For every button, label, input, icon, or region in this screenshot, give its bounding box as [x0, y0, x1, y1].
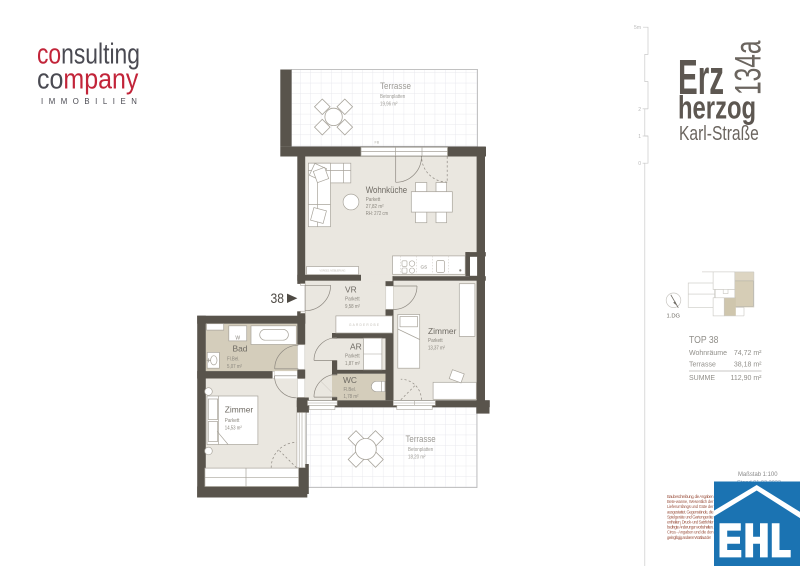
svg-text:Terrasse: Terrasse [689, 362, 716, 369]
svg-text:SUMME: SUMME [689, 375, 715, 382]
svg-text:Parkett: Parkett [345, 354, 360, 360]
svg-text:Wohnküche: Wohnküche [366, 185, 408, 195]
svg-text:FB: FB [375, 141, 380, 145]
svg-text:5,07 m²: 5,07 m² [227, 364, 242, 370]
svg-text:Zimmer: Zimmer [428, 326, 457, 336]
svg-text:38,18 m²: 38,18 m² [734, 362, 762, 369]
svg-text:Fl.Bel.: Fl.Bel. [344, 387, 357, 393]
svg-text:Wohnräume: Wohnräume [689, 350, 727, 357]
svg-text:1,78 m²: 1,78 m² [344, 394, 359, 400]
svg-text:Fl.Bel.: Fl.Bel. [227, 357, 240, 363]
svg-text:Betonplatten: Betonplatten [408, 447, 433, 453]
svg-text:Parkett: Parkett [428, 338, 443, 344]
svg-text:VORGES. MÖBLIERUNG: VORGES. MÖBLIERUNG [320, 270, 346, 273]
svg-text:Parkett: Parkett [366, 197, 381, 203]
svg-text:Betonplatten: Betonplatten [380, 94, 405, 100]
svg-text:AR: AR [350, 342, 362, 352]
svg-text:Parkett: Parkett [345, 297, 360, 303]
svg-text:Terrasse: Terrasse [406, 434, 436, 445]
svg-text:2: 2 [638, 107, 641, 113]
svg-text:VR: VR [345, 285, 357, 295]
svg-text:geringfügig anderen Wortlaut d: geringfügig anderen Wortlaut der [667, 535, 712, 540]
svg-text:GS: GS [421, 264, 428, 269]
svg-text:112,90 m²: 112,90 m² [731, 375, 763, 382]
svg-text:1: 1 [638, 134, 641, 140]
svg-text:Bad: Bad [233, 344, 248, 354]
svg-text:14,53 m²: 14,53 m² [225, 426, 242, 432]
svg-text:1.DG: 1.DG [667, 314, 681, 320]
svg-text:5m: 5m [634, 25, 641, 31]
svg-text:134a: 134a [727, 40, 769, 95]
svg-text:company: company [37, 62, 138, 95]
svg-text:Maßstab 1:100: Maßstab 1:100 [738, 471, 778, 478]
svg-text:13,37 m²: 13,37 m² [428, 346, 445, 352]
svg-text:9,58 m²: 9,58 m² [345, 304, 360, 310]
svg-text:GARDEROBE: GARDEROBE [349, 323, 379, 327]
svg-text:1,87 m²: 1,87 m² [345, 361, 360, 367]
svg-text:W: W [235, 336, 240, 342]
svg-text:RH: 272 cm: RH: 272 cm [366, 211, 388, 217]
svg-text:IMMOBILIEN: IMMOBILIEN [41, 97, 142, 106]
svg-text:27,82 m²: 27,82 m² [366, 204, 384, 210]
svg-text:0: 0 [638, 161, 641, 167]
svg-text:Karl-Straße: Karl-Straße [679, 122, 759, 145]
svg-text:WC: WC [343, 375, 357, 385]
svg-text:Zimmer: Zimmer [225, 405, 254, 415]
svg-text:19,96 m²: 19,96 m² [380, 102, 398, 108]
svg-text:74,72 m²: 74,72 m² [734, 350, 762, 357]
svg-text:Parkett: Parkett [225, 418, 240, 424]
svg-text:38: 38 [271, 291, 285, 306]
svg-text:Terrasse: Terrasse [380, 81, 411, 92]
svg-text:18,20 m²: 18,20 m² [408, 455, 426, 461]
svg-text:TOP 38: TOP 38 [689, 334, 719, 346]
